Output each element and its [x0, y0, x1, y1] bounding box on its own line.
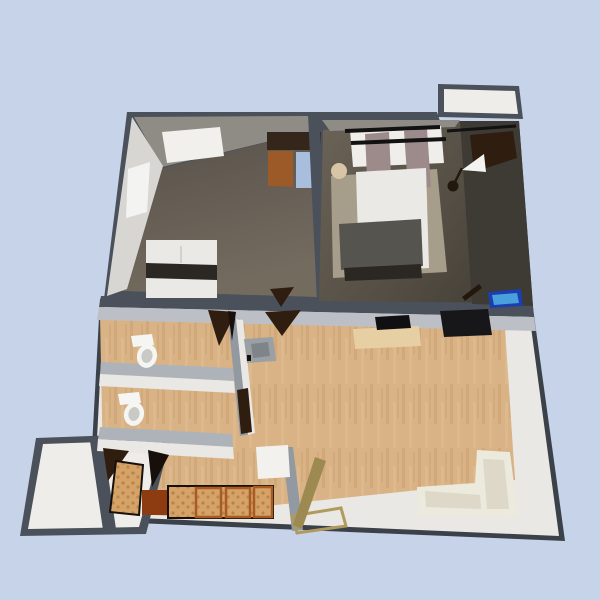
floorplan-stage	[0, 0, 600, 600]
stove[interactable]	[142, 490, 167, 515]
stool[interactable]	[331, 163, 347, 179]
fridge[interactable]	[256, 445, 290, 479]
tv[interactable]	[440, 309, 492, 337]
floorplan-canvas	[0, 0, 600, 600]
guitar-body	[448, 181, 459, 192]
desk[interactable]	[353, 326, 421, 349]
bedroom-2[interactable]	[319, 120, 533, 308]
bed1-dark-band	[146, 263, 217, 280]
bed-1[interactable]	[146, 240, 217, 298]
bedroom1-window	[126, 162, 150, 218]
sink-faucet	[247, 355, 251, 361]
balcony-top[interactable]	[438, 84, 523, 119]
bed2-blanket	[339, 219, 423, 270]
upper-block	[104, 84, 533, 308]
kitchen-counter-left[interactable]	[110, 461, 143, 515]
wardrobe-door-wood	[268, 151, 293, 187]
sink-basin	[251, 342, 270, 358]
sink[interactable]	[244, 337, 276, 363]
wall-picture[interactable]	[375, 315, 411, 330]
bedroom-1[interactable]	[107, 116, 321, 298]
lower-block	[20, 296, 565, 541]
balcony-top-floor	[444, 89, 518, 114]
blue-box[interactable]	[488, 289, 523, 308]
blue-box-top	[492, 293, 519, 305]
